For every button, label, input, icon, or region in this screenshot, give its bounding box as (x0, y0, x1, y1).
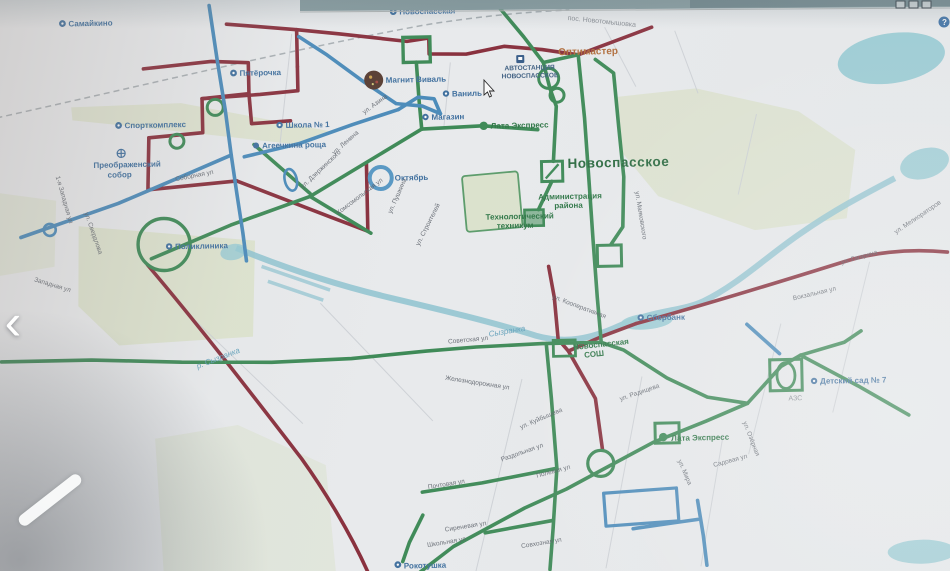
poi-label: Детский сад № 7 (820, 375, 887, 385)
map-canvas[interactable]: Самайкино Новоспасская пос. Новотомышовк… (0, 0, 950, 571)
street-label: ул. Мира (676, 459, 693, 487)
minimize-button (896, 1, 905, 8)
street-label: Советская ул (448, 335, 489, 346)
street-label: Вокзальная ул (792, 285, 837, 302)
street-label: Садовая ул (713, 453, 749, 469)
town-label: Новоспасское (567, 154, 669, 171)
restore-button (909, 1, 918, 8)
poi-label: СОШ (584, 349, 605, 360)
church-icon (117, 149, 125, 157)
street-label: Совхозная ул (521, 537, 563, 550)
poi-label: района (554, 201, 583, 211)
poi-label: Самайкино (68, 19, 112, 29)
ellipse-marker (777, 362, 796, 388)
poi-label: Лата Экспресс (491, 120, 550, 130)
street-label: ул. Озёрная (741, 421, 761, 458)
street-label: ул. Маяковского (633, 191, 648, 241)
street-label: ул. Гагарина (840, 249, 878, 266)
street-label: Западная ул (33, 276, 72, 294)
help-icon-glyph: ? (942, 18, 947, 27)
street-label: ул. Дзержинского (300, 149, 343, 190)
street-label: ул. Мелиораторов (893, 199, 943, 236)
map-content: Самайкино Новоспасская пос. Новотомышовк… (0, 0, 950, 571)
street-label: Раздольная ул (500, 442, 544, 463)
shop-logo-icon (364, 70, 383, 89)
bus-station-label: НОВОСПАССКОЕ (502, 72, 560, 80)
close-button (922, 1, 931, 8)
street-label: Полевая ул (536, 464, 572, 480)
poi-dot-marker (479, 121, 488, 130)
poi-label: техникум (497, 221, 534, 231)
prev-image-button[interactable]: ‹ (0, 298, 26, 350)
poi-label: Пятёрочка (239, 68, 281, 78)
poi-label: Школа № 1 (286, 120, 331, 130)
street-label: ул. Строителей (414, 202, 442, 247)
street-label: ул. Куйбышева (519, 406, 564, 431)
street-label: 1-я Западная ул (54, 175, 74, 224)
poi-label: Агеечкина роща (262, 140, 327, 150)
photo-of-map-screen: Самайкино Новоспасская пос. Новотомышовк… (0, 0, 950, 571)
poi-label: Рокотушка (404, 561, 447, 571)
ring-marker (587, 450, 614, 477)
poi-label: Поликлиника (175, 241, 228, 251)
poi-label: собор (108, 170, 132, 180)
poi-label: Магнит Виваль (386, 75, 447, 85)
street-label: Железнодорожная ул (445, 375, 510, 392)
poi-label: Спорткомплекс (124, 120, 186, 130)
bus-station-icon-window (518, 57, 522, 60)
town-square-marker (541, 161, 562, 181)
street-label: Школьная ул (427, 536, 467, 549)
window-controls[interactable] (896, 1, 931, 8)
poi-label: Оптимастер (558, 46, 618, 58)
poi-label: Преображенский (93, 160, 161, 170)
poi-label: Лата Экспресс (671, 433, 730, 443)
poi-label: Ваниль (452, 89, 482, 99)
square-marker (597, 245, 621, 266)
poi-label: Сбербанк (647, 313, 686, 323)
ellipse-marker (282, 168, 299, 192)
settlement-label: пос. Новотомышовка (567, 15, 636, 29)
mouse-cursor-icon (484, 80, 494, 97)
street-label: Комсомольская ул (335, 177, 384, 217)
poi-label: Магазин (431, 112, 464, 122)
park-areas (0, 85, 864, 571)
bus-station-label: АВТОСТАНЦИЯ (504, 64, 555, 72)
poi-label: АЗС (788, 395, 802, 402)
